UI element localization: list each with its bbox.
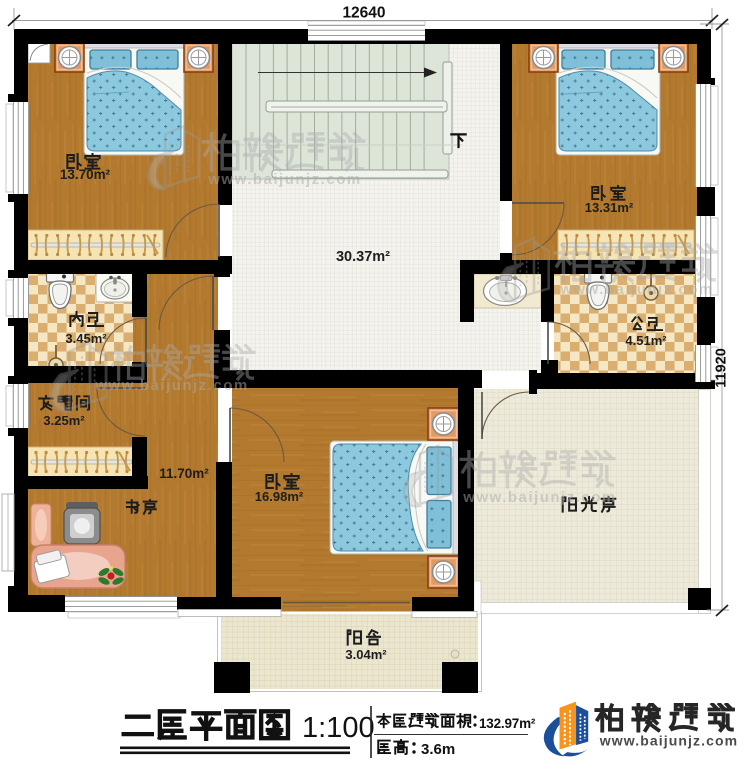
svg-text:3.04m²: 3.04m² — [345, 647, 387, 662]
svg-text:16.98m²: 16.98m² — [255, 489, 304, 504]
svg-text:11.70m²: 11.70m² — [159, 466, 209, 481]
svg-text:www.baijunjz.com: www.baijunjz.com — [207, 171, 361, 188]
svg-text:www.baijunjz.com: www.baijunjz.com — [462, 489, 616, 506]
svg-text:www.baijunjz.com: www.baijunjz.com — [559, 281, 713, 298]
svg-text:132.97m²: 132.97m² — [479, 716, 536, 731]
svg-text:3.6m: 3.6m — [421, 741, 455, 758]
svg-text:13.31m²: 13.31m² — [585, 200, 634, 215]
svg-text:1:100: 1:100 — [302, 712, 375, 744]
svg-text:3.25m²: 3.25m² — [43, 413, 85, 428]
svg-text:www.baijunjz.com: www.baijunjz.com — [599, 733, 738, 749]
svg-text:www.baijunjz.com: www.baijunjz.com — [94, 377, 248, 394]
svg-text:30.37m²: 30.37m² — [336, 249, 390, 265]
svg-text:11920: 11920 — [714, 348, 730, 388]
svg-text:4.51m²: 4.51m² — [625, 333, 667, 348]
svg-text:12640: 12640 — [342, 5, 385, 22]
svg-text:13.70m²: 13.70m² — [60, 167, 111, 182]
